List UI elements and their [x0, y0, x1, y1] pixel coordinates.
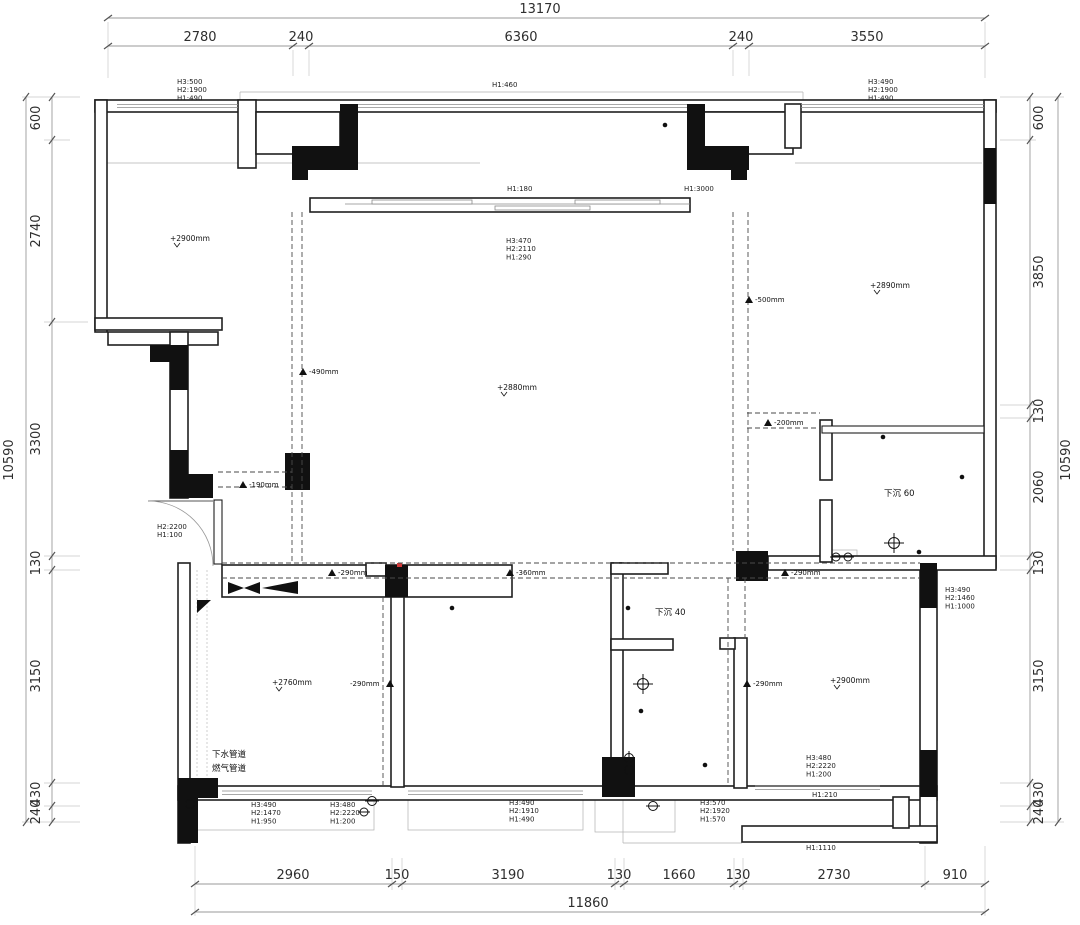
wall-segment — [822, 426, 984, 433]
platform-outline — [408, 798, 583, 830]
svg-text:H1:100: H1:100 — [157, 531, 182, 539]
svg-text:-190mm: -190mm — [249, 481, 279, 489]
extension-lines — [22, 97, 88, 822]
wall-segment — [391, 597, 404, 787]
door-label-kitchen: H3:480 H2:2220 H1:200 — [330, 801, 360, 825]
level-marker: -190mm — [239, 481, 279, 489]
wall-segment — [720, 638, 735, 649]
windows — [117, 105, 984, 795]
red-marker — [397, 563, 402, 567]
wall-segment — [611, 563, 623, 759]
corner-column — [197, 600, 211, 613]
floor-plan-canvas: 13170 2780 240 6360 240 3550 11860 2960 … — [0, 0, 1080, 925]
door-label-bedroom2: H3:480 H2:2220 H1:200 — [806, 754, 836, 778]
dim-right-total: 10590 — [1059, 439, 1074, 480]
door-label-hall: H3:570 H2:1920 H1:570 — [700, 799, 730, 823]
beam-label-top-right: H3:490 H2:1900 H1:490 — [868, 78, 898, 102]
svg-text:H2:1460: H2:1460 — [945, 594, 975, 602]
beam-label-top-center: H1:460 — [492, 81, 517, 89]
downlight-icon — [450, 606, 455, 611]
svg-text:H2:2110: H2:2110 — [506, 245, 536, 253]
wall-segment — [611, 563, 668, 574]
wall-segment — [611, 639, 673, 650]
svg-text:H3:500: H3:500 — [177, 78, 202, 86]
column-white — [238, 100, 256, 168]
svg-text:H1:290: H1:290 — [506, 253, 531, 261]
svg-text:+2760mm: +2760mm — [272, 678, 312, 687]
downlight-icon — [881, 435, 886, 440]
level-marker: -200mm — [764, 419, 804, 427]
column — [292, 170, 308, 180]
floor-plan-drawing: 13170 2780 240 6360 240 3550 11860 2960 … — [0, 0, 1080, 925]
svg-text:-290mm: -290mm — [753, 680, 783, 688]
svg-text:+2890mm: +2890mm — [870, 281, 910, 290]
window-panel — [575, 200, 660, 204]
platform-outline — [595, 798, 675, 832]
dim-bottom: 2960 — [276, 868, 309, 883]
wall-lamp-icon — [646, 802, 660, 811]
dim-left: 130 — [29, 551, 44, 576]
wall-segment — [95, 100, 107, 332]
column-white — [785, 104, 801, 148]
dimension-layer: 13170 2780 240 6360 240 3550 11860 2960 … — [2, 2, 1074, 916]
plan-notes: 下沉 60 下沉 40 下水管道 燃气管道 — [212, 489, 915, 774]
svg-text:H1:200: H1:200 — [330, 817, 355, 825]
sill-label-bedroom2: H1:210 — [812, 791, 837, 799]
svg-text:H3:490: H3:490 — [509, 799, 534, 807]
svg-text:H3:480: H3:480 — [330, 801, 355, 809]
downlight-icon — [960, 475, 965, 480]
dim-bottom: 3190 — [491, 868, 524, 883]
opening-label-hall: H1:3000 — [684, 185, 714, 193]
level-marker: -290mm — [350, 680, 394, 688]
wall-segment — [820, 500, 832, 562]
column — [285, 453, 310, 490]
dim-left: 3300 — [29, 422, 44, 455]
svg-text:H1:490: H1:490 — [509, 815, 534, 823]
dim-top: 2780 — [183, 30, 216, 45]
dim-top-total: 13170 — [519, 2, 560, 17]
dim-right: 130 — [1032, 399, 1047, 424]
downlight-icon — [639, 709, 644, 714]
beam-line — [240, 92, 803, 100]
dashed-reference — [733, 212, 748, 551]
door-frame — [214, 500, 222, 564]
dim-bottom: 910 — [943, 868, 968, 883]
dim-top: 6360 — [504, 30, 537, 45]
column — [178, 778, 218, 798]
column — [920, 563, 937, 608]
dim-bottom: 1660 — [662, 868, 695, 883]
svg-text:H2:1470: H2:1470 — [251, 809, 281, 817]
level-marker: -290mm — [743, 680, 783, 688]
beam-label-balcony: H1:180 — [507, 185, 532, 193]
svg-text:H2:1900: H2:1900 — [177, 86, 207, 94]
dim-right: 240 — [1032, 800, 1047, 825]
svg-text:H2:1920: H2:1920 — [700, 807, 730, 815]
dim-left-total: 10590 — [2, 439, 17, 480]
svg-text:-490mm: -490mm — [309, 368, 339, 376]
dim-right: 2060 — [1032, 470, 1047, 503]
column — [736, 551, 768, 581]
column — [170, 362, 188, 390]
reference-dashes — [218, 212, 920, 786]
wall-segment — [734, 638, 747, 788]
column — [602, 757, 635, 797]
window-label-kitchen: H3:490 H2:1470 H1:950 — [251, 801, 281, 825]
svg-text:H1:1000: H1:1000 — [945, 602, 975, 610]
beam-label-bottom-right: H1:1110 — [806, 844, 836, 852]
dim-left: 600 — [29, 106, 44, 131]
dim-bottom: 130 — [726, 868, 751, 883]
wall-segment — [366, 563, 386, 576]
wall-segment — [108, 332, 218, 345]
wall-segment — [893, 797, 909, 828]
note-sunken-60: 下沉 60 — [884, 489, 915, 499]
svg-text:H2:1900: H2:1900 — [868, 86, 898, 94]
svg-text:H1:200: H1:200 — [806, 770, 831, 778]
note-sunken-40: 下沉 40 — [655, 608, 686, 618]
column — [150, 345, 188, 362]
note-drain-pipe: 下水管道 — [212, 749, 247, 760]
svg-text:H2:2220: H2:2220 — [806, 762, 836, 770]
svg-text:H3:570: H3:570 — [700, 799, 725, 807]
window-label-right: H3:490 H2:1460 H1:1000 — [945, 586, 975, 610]
dim-left: 240 — [29, 800, 44, 825]
downlight-icon — [663, 123, 668, 128]
column — [170, 450, 188, 498]
dim-bottom: 130 — [607, 868, 632, 883]
svg-text:H1:490: H1:490 — [177, 94, 202, 102]
ceiling-height-marker: +2760mm — [272, 678, 312, 691]
column — [687, 146, 749, 170]
svg-text:-290mm: -290mm — [350, 680, 380, 688]
column — [984, 148, 996, 204]
svg-text:-290mm: -290mm — [791, 569, 821, 577]
svg-text:H1:570: H1:570 — [700, 815, 725, 823]
dim-top: 240 — [729, 30, 754, 45]
svg-text:H1:490: H1:490 — [868, 94, 893, 102]
svg-text:+2900mm: +2900mm — [830, 676, 870, 685]
window-label-bedroom1: H3:490 H2:1910 H1:490 — [509, 799, 539, 823]
level-marker: -500mm — [745, 296, 785, 304]
svg-text:H3:490: H3:490 — [251, 801, 276, 809]
svg-text:H3:490: H3:490 — [868, 78, 893, 86]
svg-text:-200mm: -200mm — [774, 419, 804, 427]
beam-label-top-left: H3:500 H2:1900 H1:490 — [177, 78, 207, 102]
dim-left: 2740 — [29, 214, 44, 247]
svg-text:+2880mm: +2880mm — [497, 383, 537, 392]
svg-text:H1:950: H1:950 — [251, 817, 276, 825]
dim-right: 130 — [1032, 551, 1047, 576]
column — [385, 565, 408, 597]
svg-text:-360mm: -360mm — [516, 569, 546, 577]
ceiling-height-marker: +2880mm — [497, 383, 537, 396]
wall-segment — [95, 318, 222, 330]
dim-bottom: 150 — [385, 868, 410, 883]
downlight-icon — [626, 606, 631, 611]
column — [292, 146, 358, 170]
dim-right: 3150 — [1032, 659, 1047, 692]
column — [920, 750, 937, 797]
window-panel — [495, 206, 590, 210]
dim-top: 240 — [289, 30, 314, 45]
columns — [150, 104, 996, 843]
window-panel — [372, 200, 472, 204]
dim-top: 3550 — [850, 30, 883, 45]
svg-text:-290mm: -290mm — [338, 569, 368, 577]
ceiling-lamp-icon — [884, 533, 904, 553]
dim-right: 600 — [1032, 106, 1047, 131]
svg-text:H2:2220: H2:2220 — [330, 809, 360, 817]
dim-right: 3850 — [1032, 255, 1047, 288]
ceiling-markers: +2900mm +2890mm +2880mm +2760mm +2900mm — [170, 234, 910, 691]
level-marker: -490mm — [299, 368, 339, 376]
svg-text:-500mm: -500mm — [755, 296, 785, 304]
svg-text:H3:490: H3:490 — [945, 586, 970, 594]
column — [178, 798, 198, 843]
column — [188, 474, 213, 498]
ceiling-lamp-icon — [633, 674, 653, 694]
window-label-living: H3:470 H2:2110 H1:290 — [506, 237, 536, 261]
dashed-reference — [292, 212, 302, 563]
walls — [95, 100, 996, 843]
note-gas-pipe: 燃气管道 — [212, 763, 247, 774]
downlight-icon — [917, 550, 922, 555]
svg-text:H2:2200: H2:2200 — [157, 523, 187, 531]
ceiling-height-marker: +2900mm — [830, 676, 870, 689]
height-labels: H3:500 H2:1900 H1:490 H1:460 H3:490 H2:1… — [157, 78, 975, 852]
dim-bottom: 2730 — [817, 868, 850, 883]
ceiling-height-marker: +2900mm — [170, 234, 210, 247]
door-label-entry: H2:2200 H1:100 — [157, 523, 187, 539]
svg-text:H3:480: H3:480 — [806, 754, 831, 762]
dim-bottom-total: 11860 — [567, 896, 608, 911]
column — [731, 170, 747, 180]
downlight-icon — [703, 763, 708, 768]
svg-text:H3:470: H3:470 — [506, 237, 531, 245]
svg-text:H2:1910: H2:1910 — [509, 807, 539, 815]
wall-segment — [95, 100, 996, 112]
dim-left: 3150 — [29, 659, 44, 692]
svg-text:+2900mm: +2900mm — [170, 234, 210, 243]
ceiling-height-marker: +2890mm — [870, 281, 910, 294]
extension-lines — [1000, 97, 1064, 822]
